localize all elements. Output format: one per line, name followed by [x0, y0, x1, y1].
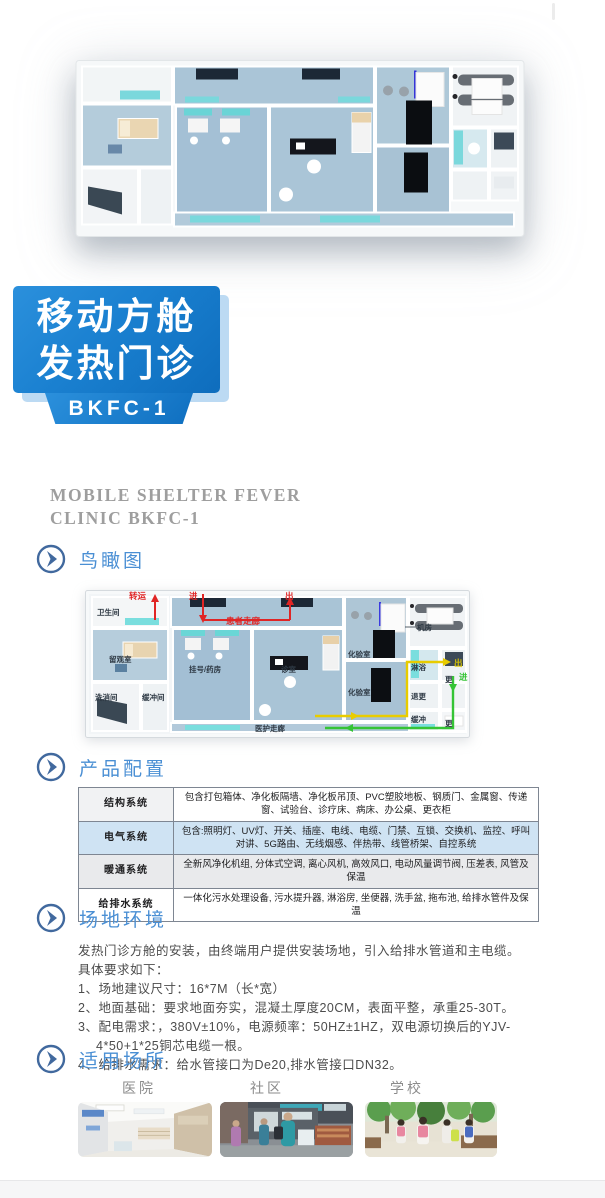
label-observation: 留观室	[109, 654, 132, 664]
config-row-label: 暖通系统	[79, 855, 174, 889]
product-model-tab: BKFC-1	[45, 393, 193, 424]
product-model-code: BKFC-1	[69, 397, 170, 420]
section-header-config: 产品配置	[36, 752, 167, 782]
table-row: 暖通系统 全新风净化机组, 分体式空调, 离心风机, 高效风口, 电动风量调节阀…	[79, 855, 539, 889]
config-row-content: 包含打包箱体、净化板隔墙、净化板吊顶、PVC塑胶地板、钢质门、金属窗、传递窗、试…	[174, 788, 539, 822]
arrow-circle-icon	[36, 752, 66, 782]
label-toilet: 卫生间	[97, 607, 120, 617]
flow-label-transfer: 转运	[129, 591, 147, 601]
product-page: 移动方舱 发热门诊 BKFC-1 MOBILE SHELTER FEVER CL…	[0, 0, 605, 1198]
site-subintro: 具体要求如下：	[78, 961, 568, 980]
config-row-label: 电气系统	[79, 821, 174, 855]
subtitle-line2: CLINIC BKFC-1	[50, 507, 301, 530]
label-washing: 洗消间	[95, 692, 118, 702]
section-header-site: 场地环境	[36, 903, 167, 933]
place-label-hospital: 医院	[122, 1078, 156, 1098]
product-title-banner: 移动方舱 发热门诊	[13, 286, 220, 393]
label-registration: 挂号/药房	[189, 664, 222, 674]
section-header-places: 适用场所	[36, 1044, 167, 1074]
config-row-content: 一体化污水处理设备, 污水提升器, 淋浴房, 坐便器, 洗手盆, 拖布池, 给排…	[174, 888, 539, 922]
config-row-label: 结构系统	[79, 788, 174, 822]
label-lab-lower: 化验室	[348, 687, 371, 697]
label-change-out: 退更	[411, 692, 426, 701]
flow-label-staff-enter: 进	[459, 672, 468, 682]
site-intro: 发热门诊方舱的安装，由终端用户提供安装场地，引入给排水管道和主电缆。	[78, 942, 568, 961]
section-title-aerial: 鸟瞰图	[79, 546, 145, 573]
community-photo	[220, 1102, 353, 1157]
label-lab-upper: 化验室	[348, 649, 371, 659]
subtitle-line1: MOBILE SHELTER FEVER	[50, 484, 301, 507]
label-machine-room: 机房	[417, 622, 432, 632]
arrow-circle-icon	[36, 903, 66, 933]
banner-title-line1: 移动方舱	[37, 293, 197, 340]
site-requirement: 1、场地建议尺寸：16*7M（长*宽）	[78, 980, 568, 999]
floorplan-image: 转运 进 出 患者走廊 出 进 卫生间 留观室 洗消间 缓冲间	[85, 590, 470, 738]
section-header-aerial: 鸟瞰图	[36, 544, 145, 574]
hospital-photo	[78, 1102, 212, 1157]
label-consult-room: 诊室	[281, 664, 296, 674]
config-row-content: 全新风净化机组, 分体式空调, 离心风机, 高效风口, 电动风量调节阀, 压差表…	[174, 855, 539, 889]
label-buffer-room: 缓冲间	[141, 692, 165, 702]
label-shower: 淋浴	[411, 662, 426, 672]
site-requirement: 2、地面基础：要求地面夯实，混凝土厚度20CM，表面平整，承重25-30T。	[78, 999, 568, 1018]
clinic-aerial-render	[70, 50, 530, 245]
section-title-site: 场地环境	[79, 905, 167, 932]
clinic-floorplan-render: 转运 进 出 患者走廊 出 进 卫生间 留观室 洗消间 缓冲间	[85, 590, 470, 738]
label-patient-corridor: 患者走廊	[226, 616, 261, 626]
label-staff-corridor: 医护走廊	[255, 723, 285, 733]
english-subtitle: MOBILE SHELTER FEVER CLINIC BKFC-1	[50, 484, 301, 530]
table-row: 结构系统 包含打包箱体、净化板隔墙、净化板吊顶、PVC塑胶地板、钢质门、金属窗、…	[79, 788, 539, 822]
label-change-mid: 更	[445, 675, 453, 684]
label-change-bottom: 更	[445, 719, 453, 728]
table-row: 电气系统 包含:照明灯、UV灯、开关、插座、电线、电缆、门禁、互锁、交换机、监控…	[79, 821, 539, 855]
footer-strip	[0, 1180, 605, 1198]
arrow-circle-icon	[36, 1044, 66, 1074]
scrollbar-artifact	[552, 3, 555, 20]
flow-label-enter: 进	[189, 591, 198, 601]
place-label-community: 社区	[250, 1078, 284, 1098]
section-title-places: 适用场所	[79, 1046, 167, 1073]
section-title-config: 产品配置	[79, 754, 167, 781]
arrow-circle-icon	[36, 544, 66, 574]
school-photo	[365, 1102, 497, 1157]
banner-title-line2: 发热门诊	[37, 340, 197, 387]
flow-label-staff-exit: 出	[454, 658, 463, 668]
config-row-content: 包含:照明灯、UV灯、开关、插座、电线、电缆、门禁、互锁、交换机、监控、呼叫对讲…	[174, 821, 539, 855]
hero-render-image	[70, 50, 530, 245]
place-label-school: 学校	[390, 1078, 424, 1098]
label-buffer-small: 缓冲	[410, 714, 426, 724]
